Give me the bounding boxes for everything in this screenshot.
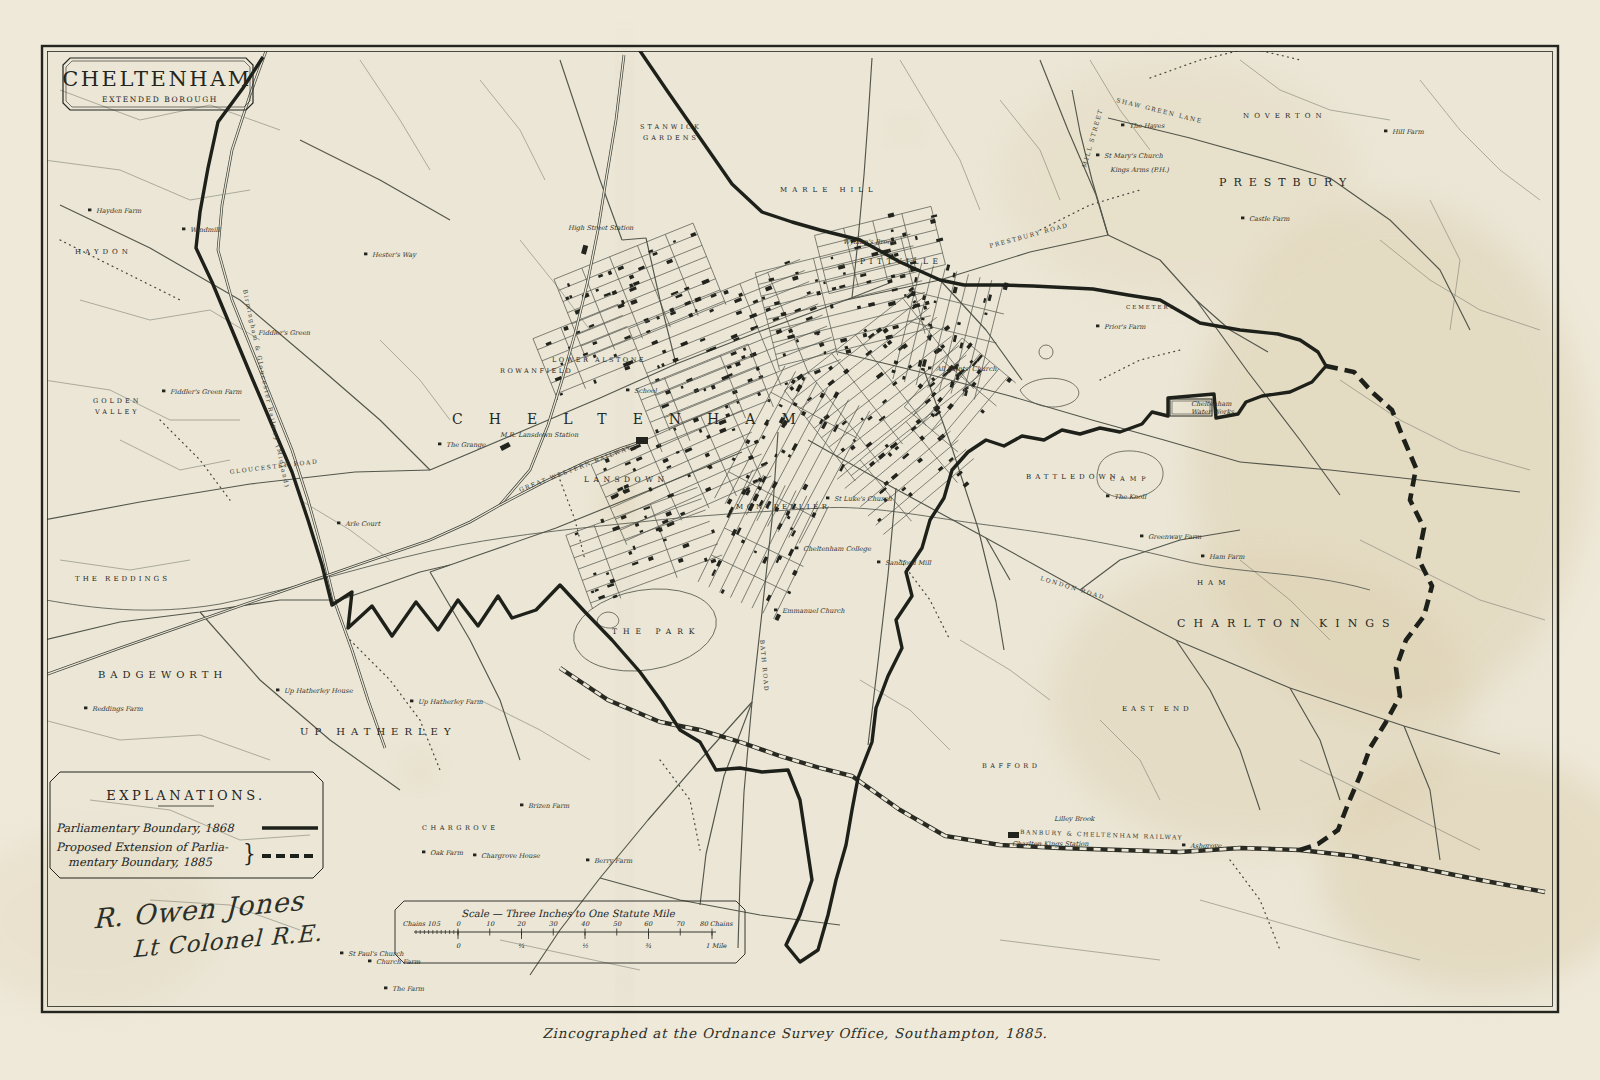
building-marker (364, 253, 367, 256)
map-title: CHELTENHAM (62, 67, 252, 91)
district-label: STANWICK (640, 123, 702, 131)
place-label: Ham Farm (1209, 553, 1245, 561)
building-marker (276, 689, 279, 692)
legend-item-1868-label: Parliamentary Boundary, 1868 (56, 821, 235, 835)
building-marker (1201, 555, 1204, 558)
legend-bracket: } (243, 838, 256, 867)
scale-chain-label: 20 (517, 920, 526, 928)
district-label: CAMP (1110, 475, 1151, 483)
building-marker (88, 209, 91, 212)
building-marker (1140, 535, 1143, 538)
scale-mile-label: ¾ (645, 942, 652, 950)
place-label: The Hayes (1129, 122, 1165, 130)
building-marker (340, 952, 343, 955)
place-label: St Paul's Church (348, 950, 404, 958)
district-label: BADGEWORTH (98, 669, 227, 680)
district-label: VALLEY (94, 408, 140, 416)
district-label: CHARGROVE (422, 824, 498, 832)
scale-title: Scale — Three Inches to One Statute Mile (461, 908, 675, 919)
place-label: The Grange (446, 441, 486, 449)
place-label: Cheltenham College (803, 545, 872, 553)
imprint: Zincographed at the Ordnance Survey Offi… (542, 1025, 1047, 1041)
district-label: NOVERTON (1243, 112, 1327, 120)
district-label: ROWANFIELD (500, 367, 573, 375)
scale-chain-label: 70 (676, 920, 685, 928)
place-label: Emmanuel Church (782, 607, 845, 615)
district-label: PRESTBURY (1219, 176, 1353, 189)
building-marker (337, 522, 340, 525)
place-label: Brizen Farm (528, 802, 570, 810)
building-marker (774, 609, 777, 612)
district-label: GOLDEN (93, 397, 141, 405)
district-label: PITTVILLE (860, 257, 942, 266)
place-label: Hill Farm (1392, 128, 1424, 136)
legend-item-1885-label-line1: Proposed Extension of Parlia- (56, 840, 229, 854)
district-label: CHARLTON KINGS (1177, 617, 1398, 630)
place-label: Prior's Farm (1104, 323, 1146, 331)
place-label: School (634, 387, 657, 395)
building-marker (368, 960, 371, 963)
map-page: { "colors": { "paper": "#ebe6d6", "paper… (0, 0, 1600, 1080)
building-marker (422, 851, 425, 854)
place-label: Wyman's Brook (843, 238, 896, 246)
place-label: Reddings Farm (92, 705, 144, 713)
scale-mile-label: ¼ (518, 942, 525, 950)
district-label: CEMETERY (1126, 304, 1175, 310)
place-label: Charlton Kings Station (1012, 840, 1089, 848)
building-marker (877, 561, 880, 564)
building-marker (84, 707, 87, 710)
place-label: Hester's Way (372, 251, 417, 259)
scale-chain-label: 60 (644, 920, 653, 928)
building-marker (520, 804, 523, 807)
district-label: BATTLEDOWN (1026, 473, 1120, 481)
place-label: St Mary's Church (1104, 152, 1163, 160)
map-subtitle: EXTENDED BOROUGH (102, 95, 218, 104)
building-marker (1096, 325, 1099, 328)
district-label: UP HATHERLEY (300, 726, 457, 737)
place-label: Sandford Mill (885, 559, 932, 567)
building-marker (182, 228, 185, 231)
district-label: GARDENS (643, 134, 699, 142)
district-label: EAST END (1122, 705, 1193, 713)
building-marker (1121, 124, 1124, 127)
place-label: Chargrove House (481, 852, 541, 860)
scale-chain-label: 10 (486, 920, 495, 928)
district-label: BAFFORD (982, 762, 1040, 770)
place-label: Arle Court (344, 520, 381, 528)
district-label: MARLE HILL (780, 186, 878, 194)
district-label: THE REDDINGS (75, 575, 170, 583)
building-marker (1182, 844, 1185, 847)
building-marker (586, 859, 589, 862)
building-marker (438, 443, 441, 446)
place-label: High Street Station (568, 224, 634, 232)
place-label: Hayden Farm (96, 207, 142, 215)
place-label: Windmill (190, 226, 221, 234)
building-marker (1106, 495, 1109, 498)
scale-chain-label: 30 (549, 920, 558, 928)
legend-item-1885-label-line2: mentary Boundary, 1885 (68, 855, 212, 869)
place-label: All Saints' Church (935, 365, 997, 373)
district-label: HAYDON (75, 248, 132, 256)
place-label: Kings Arms (P.H.) (1110, 166, 1169, 174)
place-label: Fiddler's Green Farm (170, 388, 242, 396)
building-marker (928, 367, 931, 370)
building-marker (826, 497, 829, 500)
place-label: M.R. Lansdown Station (500, 431, 579, 439)
legend-title: EXPLANATIONS. (106, 788, 265, 803)
district-label: LANSDOWN (584, 475, 669, 484)
place-label: Water Works (1191, 408, 1234, 416)
building-marker (1241, 217, 1244, 220)
scale-mile-label: ½ (582, 942, 589, 950)
district-label: LOWER ALSTONE (552, 356, 646, 364)
place-label: Cheltenham (1191, 400, 1232, 408)
building-marker (473, 854, 476, 857)
building-marker (1096, 154, 1099, 157)
district-label: HAM (1197, 579, 1230, 587)
place-label: Lilley Brook (1054, 815, 1095, 823)
place-label: Up Hatherley Farm (418, 698, 484, 706)
building-marker (795, 547, 798, 550)
place-label: The Knoll (1114, 493, 1147, 501)
building-marker (1384, 130, 1387, 133)
map-canvas: PRESTBURYNOVERTONCHARLTON KINGSEAST ENDH… (0, 0, 1600, 1080)
place-label: Castle Farm (1249, 215, 1290, 223)
building-marker (162, 390, 165, 393)
scale-mile-label: 1 Mile (706, 942, 728, 950)
scale-chain-label: 80 Chains (700, 920, 734, 928)
place-label: Fiddler's Green (258, 329, 311, 337)
scale-chain-label: Chains 10 (403, 920, 437, 928)
place-label: Oak Farm (430, 849, 464, 857)
district-label: THE PARK (612, 627, 700, 636)
building-marker (410, 700, 413, 703)
scale-chain-label: 50 (613, 920, 622, 928)
building-marker (384, 987, 387, 990)
place-label: The Farm (392, 985, 425, 993)
place-label: Ashgrove (1189, 842, 1222, 850)
building-marker (626, 389, 629, 392)
place-label: St Luke's Church (834, 495, 892, 503)
place-label: Berry Farm (594, 857, 633, 865)
place-label: Up Hatherley House (284, 687, 354, 695)
district-label: CHELTENHAM (452, 411, 822, 427)
scale-chain-label: 40 (581, 920, 590, 928)
place-label: Church Farm (376, 958, 421, 966)
district-label: MONTPELLIER (736, 503, 830, 511)
place-label: Greenway Farm (1148, 533, 1202, 541)
